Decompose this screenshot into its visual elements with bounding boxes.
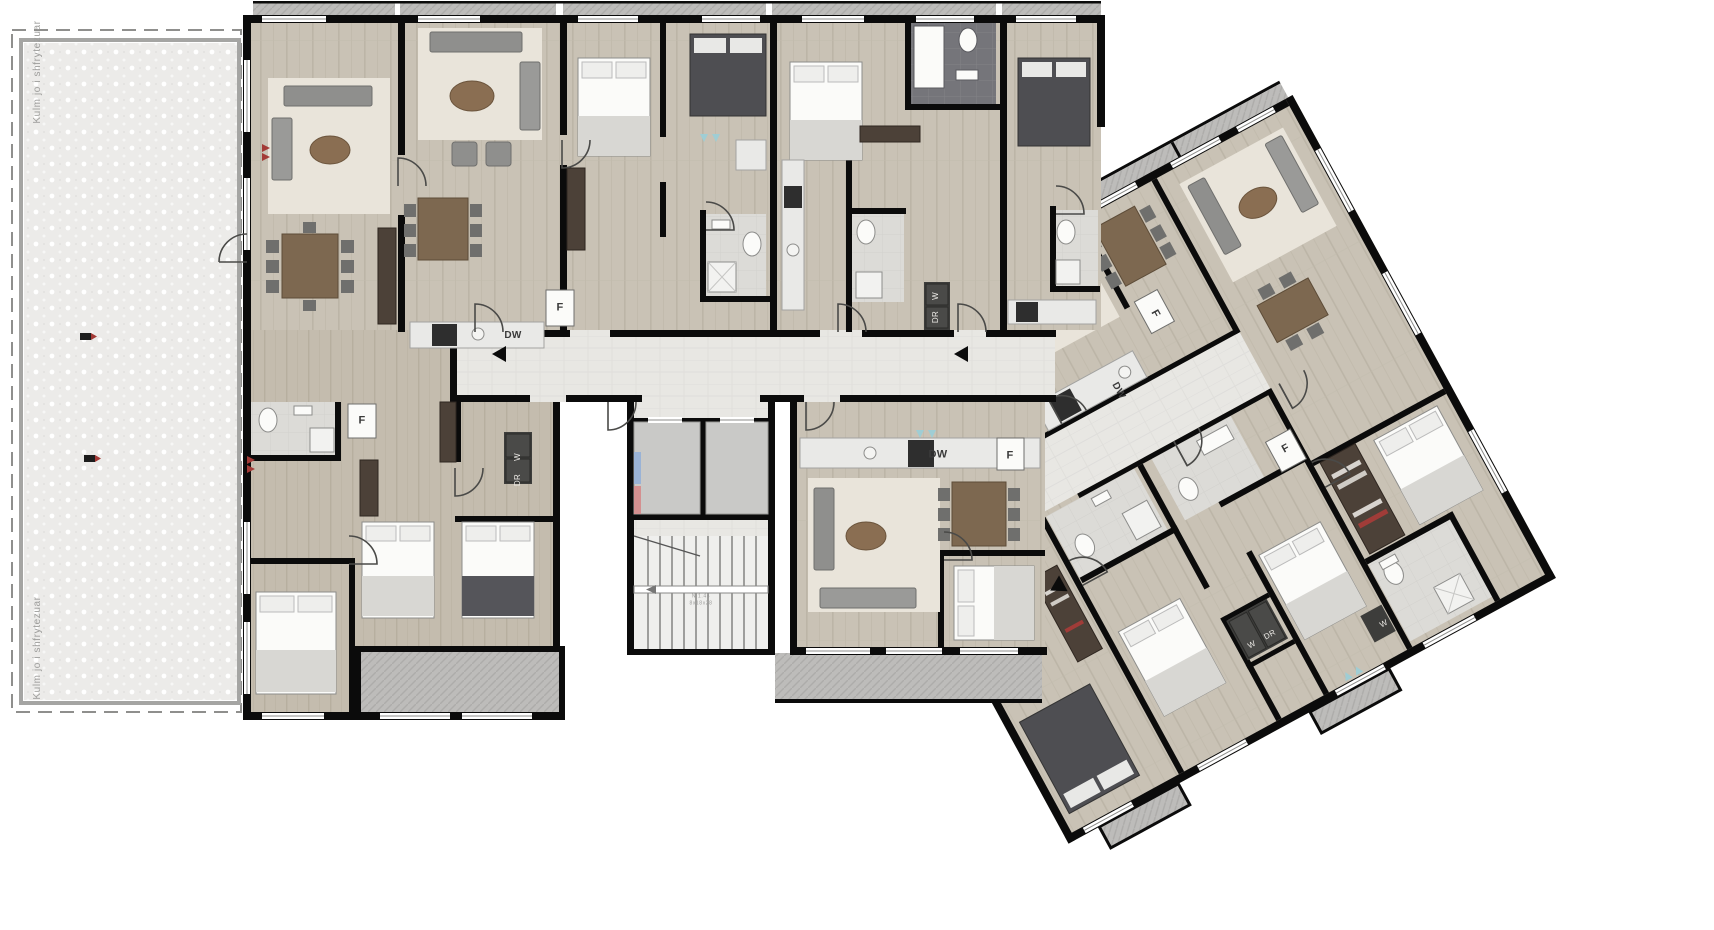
staircase	[634, 536, 768, 649]
floor-plan-page: { "document": { "type": "architectural-f…	[0, 0, 1714, 930]
main-building	[219, 1, 1105, 720]
roof-terrace	[12, 30, 241, 712]
floor-plan-drawing	[0, 0, 1714, 930]
apartment-b2	[800, 438, 1040, 640]
